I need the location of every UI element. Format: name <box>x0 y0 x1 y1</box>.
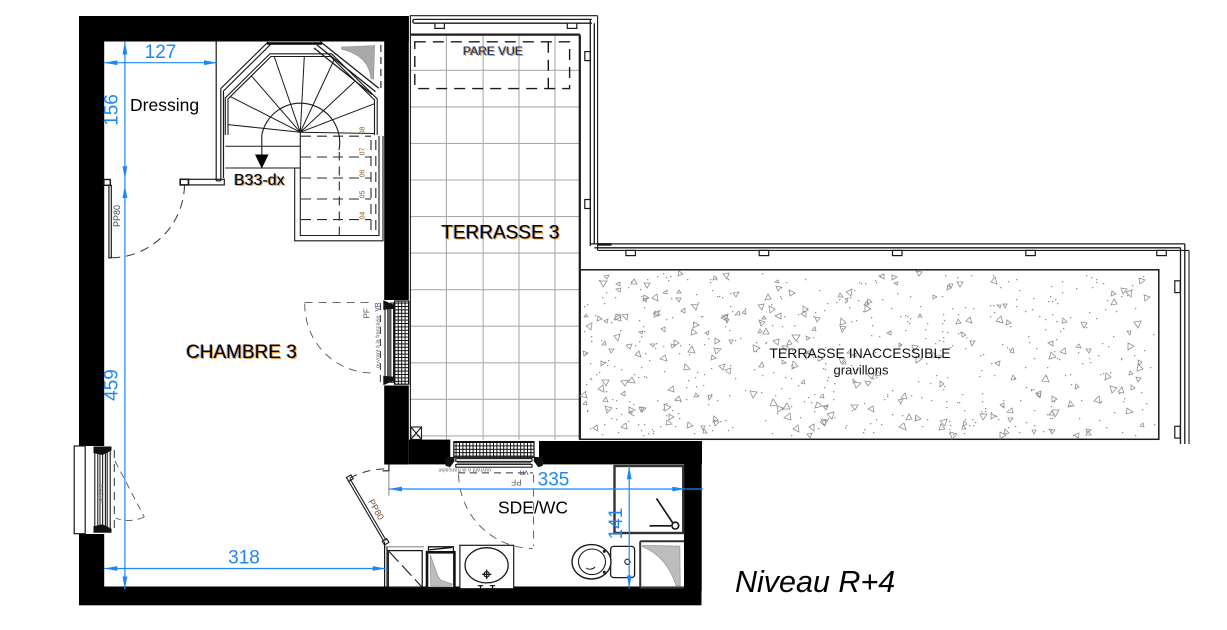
svg-text:gravillons: gravillons <box>834 363 889 378</box>
svg-text:05: 05 <box>360 191 367 199</box>
svg-text:Niveau R+4: Niveau R+4 <box>735 565 895 599</box>
svg-text:PF: PF <box>511 478 521 487</box>
svg-text:459: 459 <box>102 369 123 401</box>
svg-text:141: 141 <box>606 508 627 540</box>
svg-text:318: 318 <box>228 548 260 569</box>
svg-text:B33-dx: B33-dx <box>234 172 285 189</box>
svg-text:PARE VUE: PARE VUE <box>463 44 523 58</box>
svg-text:TERRASSE 3: TERRASSE 3 <box>441 223 559 244</box>
svg-text:alu/vitré: alu/vitré <box>99 484 105 503</box>
svg-text:07: 07 <box>360 148 367 156</box>
svg-text:ouvrant à la française: ouvrant à la française <box>438 467 491 473</box>
svg-text:08: 08 <box>360 127 367 135</box>
svg-text:PP80: PP80 <box>112 205 122 227</box>
svg-text:PF: PF <box>363 308 372 318</box>
svg-text:CHAMBRE 3: CHAMBRE 3 <box>186 342 297 363</box>
svg-text:VR: VR <box>519 468 528 475</box>
svg-text:06: 06 <box>360 170 367 178</box>
svg-text:VR: VR <box>374 302 381 311</box>
svg-text:156: 156 <box>102 94 123 126</box>
svg-text:ouvrant à la française: ouvrant à la française <box>376 315 382 368</box>
svg-text:127: 127 <box>145 42 177 63</box>
svg-text:04: 04 <box>360 212 367 220</box>
svg-text:335: 335 <box>538 470 570 491</box>
svg-text:Dressing: Dressing <box>130 95 199 115</box>
svg-text:SDE/WC: SDE/WC <box>498 498 568 518</box>
svg-text:TERRASSE INACCESSIBLE: TERRASSE INACCESSIBLE <box>769 345 950 361</box>
